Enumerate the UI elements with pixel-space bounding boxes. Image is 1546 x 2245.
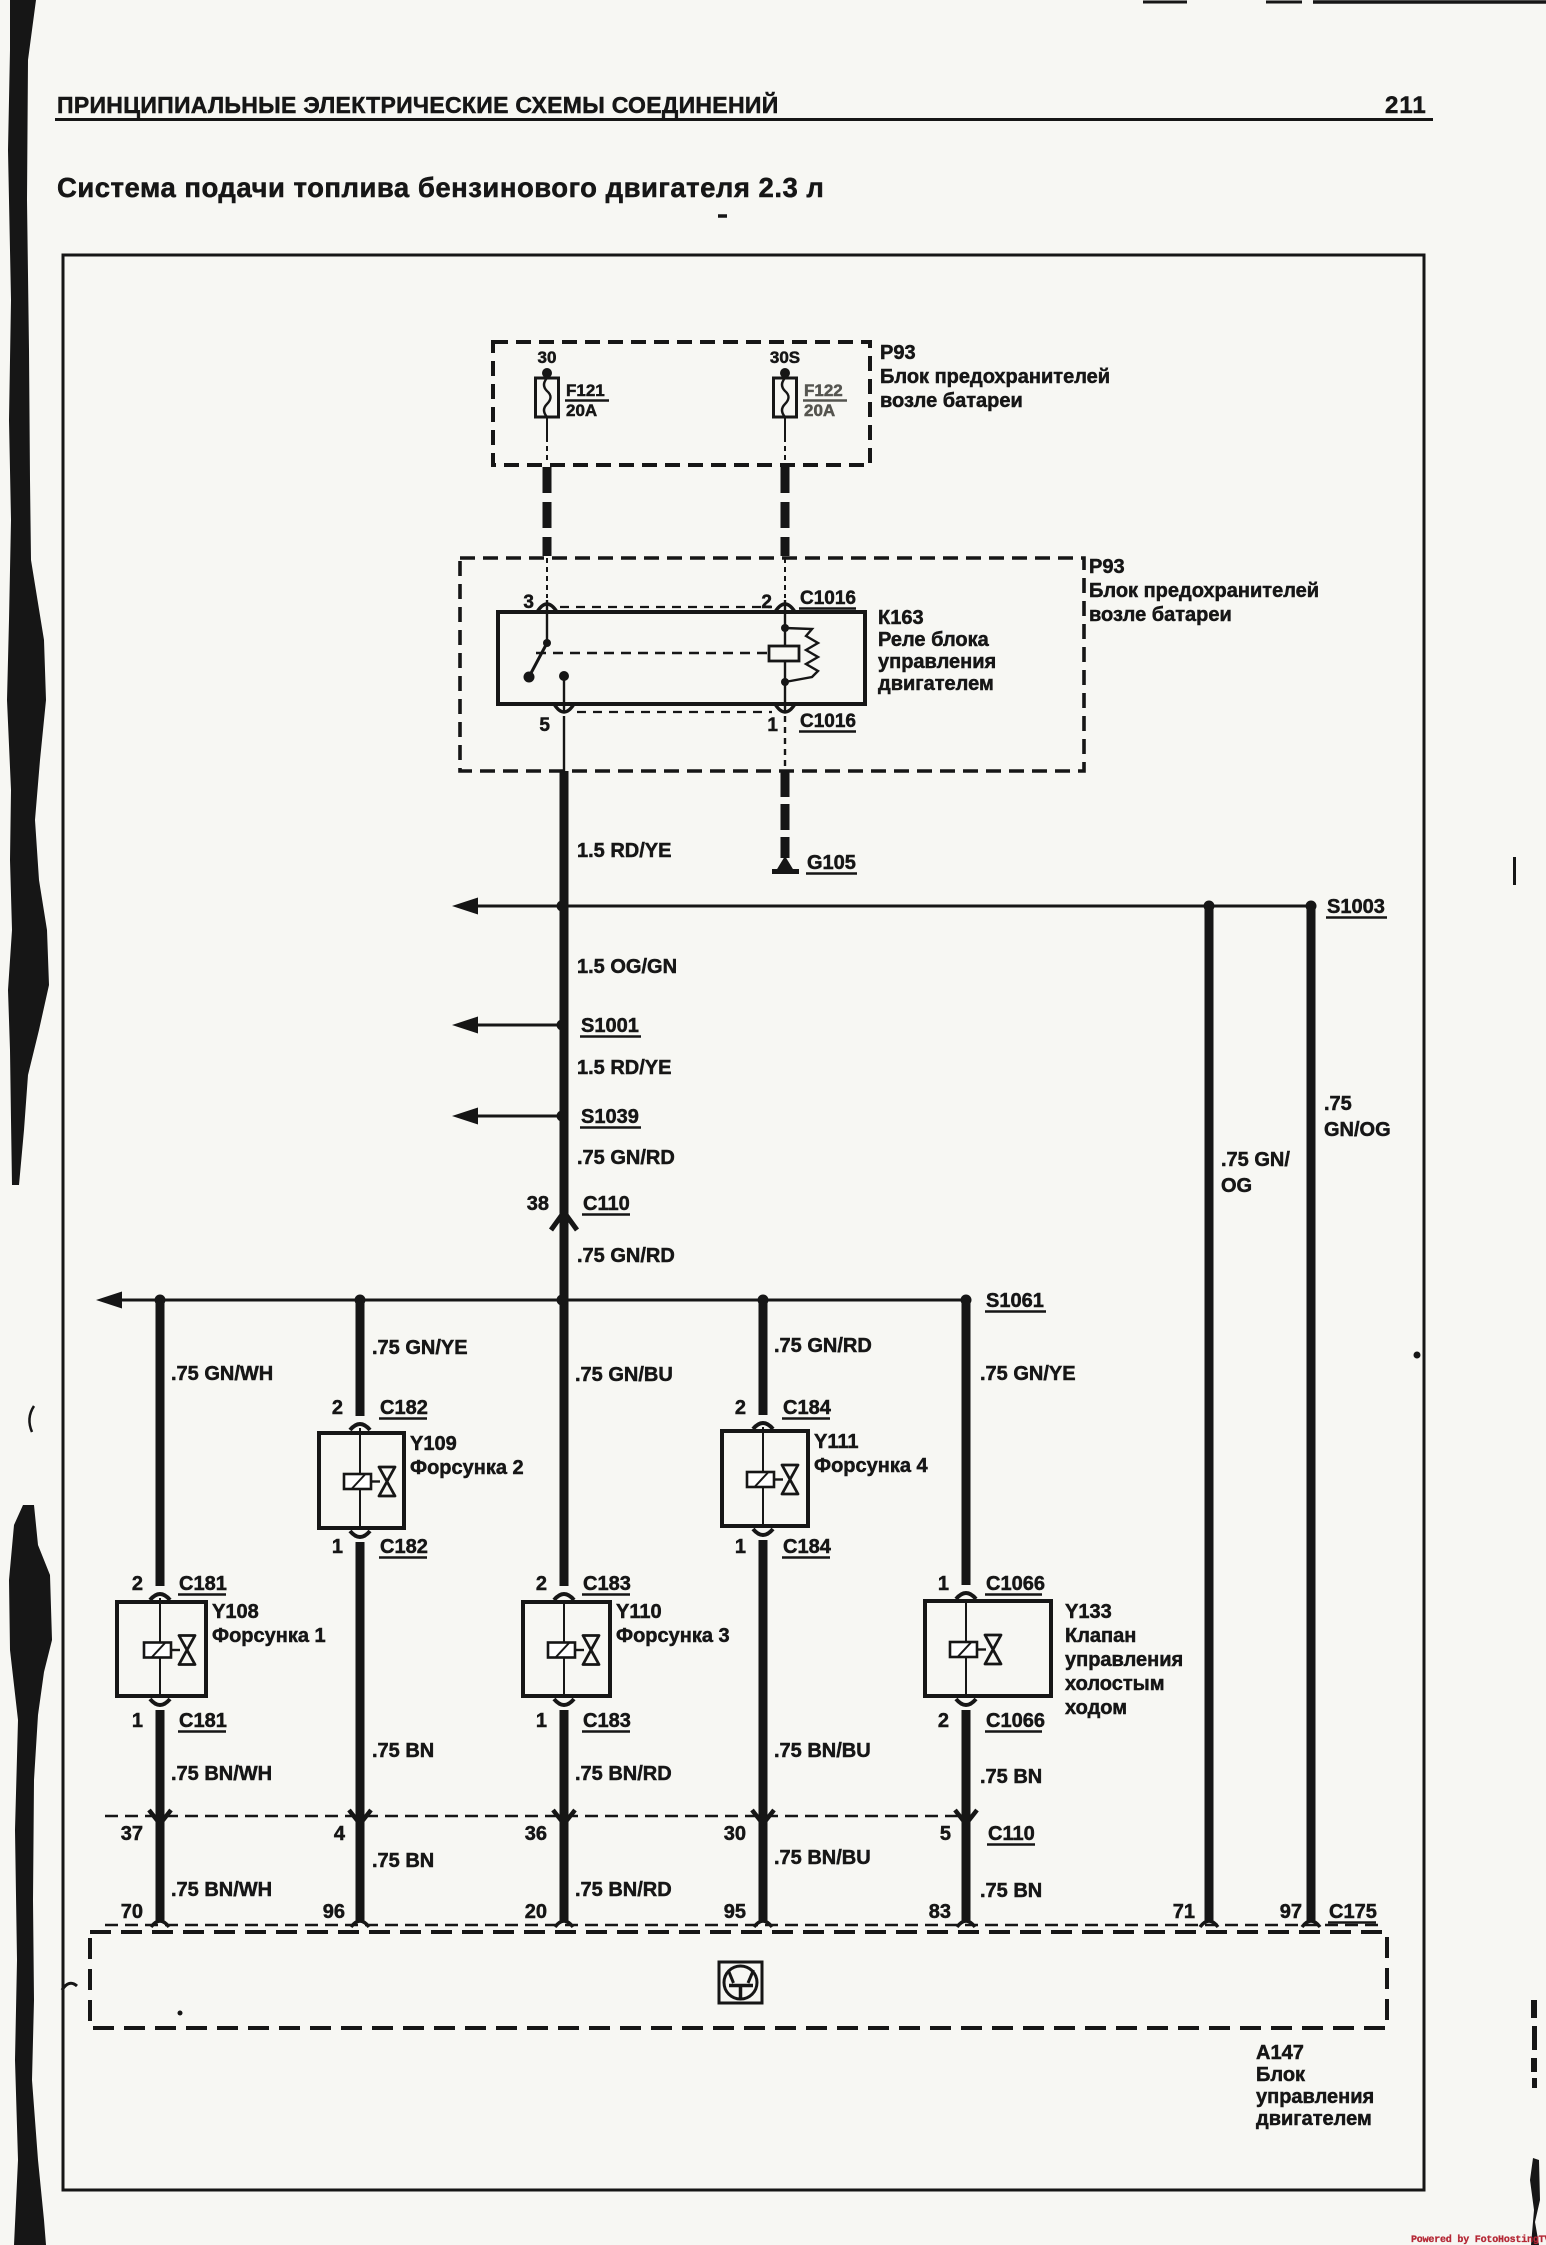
svg-text:C183: C183 bbox=[583, 1710, 631, 1732]
svg-text:96: 96 bbox=[323, 1901, 345, 1923]
svg-text:.75 GN/YE: .75 GN/YE bbox=[980, 1363, 1076, 1385]
svg-text:Блок предохранителей: Блок предохранителей bbox=[1089, 580, 1319, 602]
svg-text:1: 1 bbox=[938, 1573, 949, 1595]
svg-text:2: 2 bbox=[332, 1397, 343, 1419]
svg-text:.75 GN/RD: .75 GN/RD bbox=[577, 1147, 675, 1169]
svg-text:30S: 30S bbox=[770, 348, 800, 367]
svg-text:20: 20 bbox=[525, 1901, 547, 1923]
svg-text:G105: G105 bbox=[807, 852, 856, 874]
svg-text:5: 5 bbox=[539, 715, 550, 736]
svg-text:Реле блока: Реле блока bbox=[878, 629, 990, 651]
svg-text:2: 2 bbox=[132, 1573, 143, 1595]
svg-text:2: 2 bbox=[938, 1710, 949, 1732]
svg-text:.75 BN: .75 BN bbox=[372, 1740, 434, 1762]
svg-text:К163: К163 bbox=[878, 607, 924, 629]
svg-text:S1039: S1039 bbox=[581, 1106, 639, 1128]
svg-text:холостым: холостым bbox=[1065, 1673, 1165, 1695]
svg-text:30: 30 bbox=[538, 348, 557, 367]
svg-text:5: 5 bbox=[940, 1823, 951, 1845]
svg-text:C110: C110 bbox=[583, 1193, 630, 1215]
svg-text:37: 37 bbox=[121, 1823, 143, 1845]
svg-text:C184: C184 bbox=[783, 1536, 832, 1558]
svg-text:.75 BN/WH: .75 BN/WH bbox=[171, 1879, 272, 1901]
svg-text:.75 GN/RD: .75 GN/RD bbox=[577, 1245, 675, 1267]
svg-text:S1061: S1061 bbox=[986, 1290, 1044, 1312]
svg-text:A147: A147 bbox=[1256, 2042, 1304, 2064]
svg-text:20А: 20А bbox=[804, 401, 835, 420]
svg-text:C182: C182 bbox=[380, 1536, 428, 1558]
svg-text:двигателем: двигателем bbox=[878, 673, 994, 695]
svg-text:2: 2 bbox=[536, 1573, 547, 1595]
svg-text:C175: C175 bbox=[1329, 1901, 1377, 1923]
svg-text:1: 1 bbox=[735, 1536, 746, 1558]
svg-text:F121: F121 bbox=[566, 381, 605, 400]
svg-text:.75 GN/WH: .75 GN/WH bbox=[171, 1363, 273, 1385]
svg-text:управления: управления bbox=[1256, 2086, 1374, 2108]
svg-text:20А: 20А bbox=[566, 401, 597, 420]
svg-text:97: 97 bbox=[1280, 1901, 1302, 1923]
svg-text:1: 1 bbox=[536, 1710, 547, 1732]
svg-text:управления: управления bbox=[1065, 1649, 1183, 1671]
svg-text:C1066: C1066 bbox=[986, 1710, 1045, 1732]
svg-text:C181: C181 bbox=[179, 1573, 227, 1595]
svg-text:71: 71 bbox=[1173, 1901, 1195, 1923]
svg-text:4: 4 bbox=[334, 1823, 346, 1845]
svg-text:управления: управления bbox=[878, 651, 996, 673]
svg-text:Y108: Y108 bbox=[212, 1601, 259, 1623]
svg-text:1: 1 bbox=[132, 1710, 143, 1732]
svg-text:Форсунка 1: Форсунка 1 bbox=[212, 1625, 326, 1647]
svg-text:Y110: Y110 bbox=[616, 1601, 662, 1623]
svg-text:.75 BN: .75 BN bbox=[980, 1880, 1042, 1902]
svg-text:.75 GN/YE: .75 GN/YE bbox=[372, 1337, 468, 1359]
svg-text:Р93: Р93 bbox=[880, 342, 916, 364]
svg-text:Powered by FotoHostingTV RU: Powered by FotoHostingTV RU bbox=[1411, 2234, 1546, 2245]
svg-text:.75 BN: .75 BN bbox=[980, 1766, 1042, 1788]
svg-text:95: 95 bbox=[724, 1901, 746, 1923]
svg-text:Y111: Y111 bbox=[814, 1431, 859, 1453]
svg-text:OG: OG bbox=[1221, 1175, 1252, 1197]
svg-text:Система подачи топлива бензино: Система подачи топлива бензинового двига… bbox=[57, 172, 824, 203]
svg-text:.75 GN/BU: .75 GN/BU bbox=[575, 1364, 673, 1386]
svg-text:.75 BN/BU: .75 BN/BU bbox=[774, 1740, 871, 1762]
svg-text:Y133: Y133 bbox=[1065, 1601, 1112, 1623]
svg-text:83: 83 bbox=[929, 1901, 951, 1923]
svg-text:30: 30 bbox=[724, 1823, 746, 1845]
svg-text:C1016: C1016 bbox=[800, 588, 856, 609]
svg-text:3: 3 bbox=[523, 592, 534, 613]
svg-text:C1016: C1016 bbox=[800, 711, 856, 732]
svg-text:F122: F122 bbox=[804, 381, 843, 400]
svg-text:возле батареи: возле батареи bbox=[1089, 604, 1232, 626]
svg-text:Форсунка 2: Форсунка 2 bbox=[410, 1457, 524, 1479]
svg-text:C182: C182 bbox=[380, 1397, 428, 1419]
svg-text:C110: C110 bbox=[988, 1823, 1035, 1845]
svg-text:Р93: Р93 bbox=[1089, 556, 1125, 578]
svg-text:C1066: C1066 bbox=[986, 1573, 1045, 1595]
svg-text:Форсунка 3: Форсунка 3 bbox=[616, 1625, 730, 1647]
svg-text:Блок: Блок bbox=[1256, 2064, 1306, 2086]
svg-text:1: 1 bbox=[332, 1536, 343, 1558]
svg-text:Y109: Y109 bbox=[410, 1433, 457, 1455]
svg-text:Клапан: Клапан bbox=[1065, 1625, 1136, 1647]
svg-text:1.5 RD/YE: 1.5 RD/YE bbox=[577, 840, 671, 862]
svg-text:.75 BN/RD: .75 BN/RD bbox=[575, 1763, 672, 1785]
svg-text:C183: C183 bbox=[583, 1573, 631, 1595]
svg-text:38: 38 bbox=[527, 1193, 549, 1215]
svg-text:1.5 RD/YE: 1.5 RD/YE bbox=[577, 1057, 671, 1079]
svg-text:S1003: S1003 bbox=[1327, 896, 1385, 918]
svg-text:.75 GN/: .75 GN/ bbox=[1221, 1149, 1290, 1171]
svg-text:1.5 OG/GN: 1.5 OG/GN bbox=[577, 956, 677, 978]
svg-text:.75 BN/RD: .75 BN/RD bbox=[575, 1879, 672, 1901]
svg-text:GN/OG: GN/OG bbox=[1324, 1119, 1391, 1141]
svg-text:Блок предохранителей: Блок предохранителей bbox=[880, 366, 1110, 388]
svg-text:2: 2 bbox=[761, 592, 772, 613]
svg-text:двигателем: двигателем bbox=[1256, 2108, 1372, 2130]
svg-text:2: 2 bbox=[735, 1397, 746, 1419]
svg-text:S1001: S1001 bbox=[581, 1015, 639, 1037]
svg-text:211: 211 bbox=[1385, 92, 1427, 119]
svg-text:ПРИНЦИПИАЛЬНЫЕ ЭЛЕКТРИЧЕСКИЕ С: ПРИНЦИПИАЛЬНЫЕ ЭЛЕКТРИЧЕСКИЕ СХЕМЫ СОЕДИ… bbox=[57, 91, 779, 118]
svg-text:.75 BN/BU: .75 BN/BU bbox=[774, 1847, 871, 1869]
svg-text:Форсунка 4: Форсунка 4 bbox=[814, 1455, 929, 1477]
svg-text:.75 GN/RD: .75 GN/RD bbox=[774, 1335, 872, 1357]
svg-text:возле батареи: возле батареи bbox=[880, 390, 1023, 412]
svg-text:36: 36 bbox=[525, 1823, 547, 1845]
svg-text:.75 BN: .75 BN bbox=[372, 1850, 434, 1872]
svg-text:C184: C184 bbox=[783, 1397, 832, 1419]
svg-text:.75 BN/WH: .75 BN/WH bbox=[171, 1763, 272, 1785]
svg-text:70: 70 bbox=[121, 1901, 143, 1923]
svg-text:1: 1 bbox=[767, 715, 778, 736]
svg-text:.75: .75 bbox=[1324, 1093, 1352, 1115]
svg-text:C181: C181 bbox=[179, 1710, 227, 1732]
svg-text:ходом: ходом bbox=[1065, 1697, 1127, 1719]
